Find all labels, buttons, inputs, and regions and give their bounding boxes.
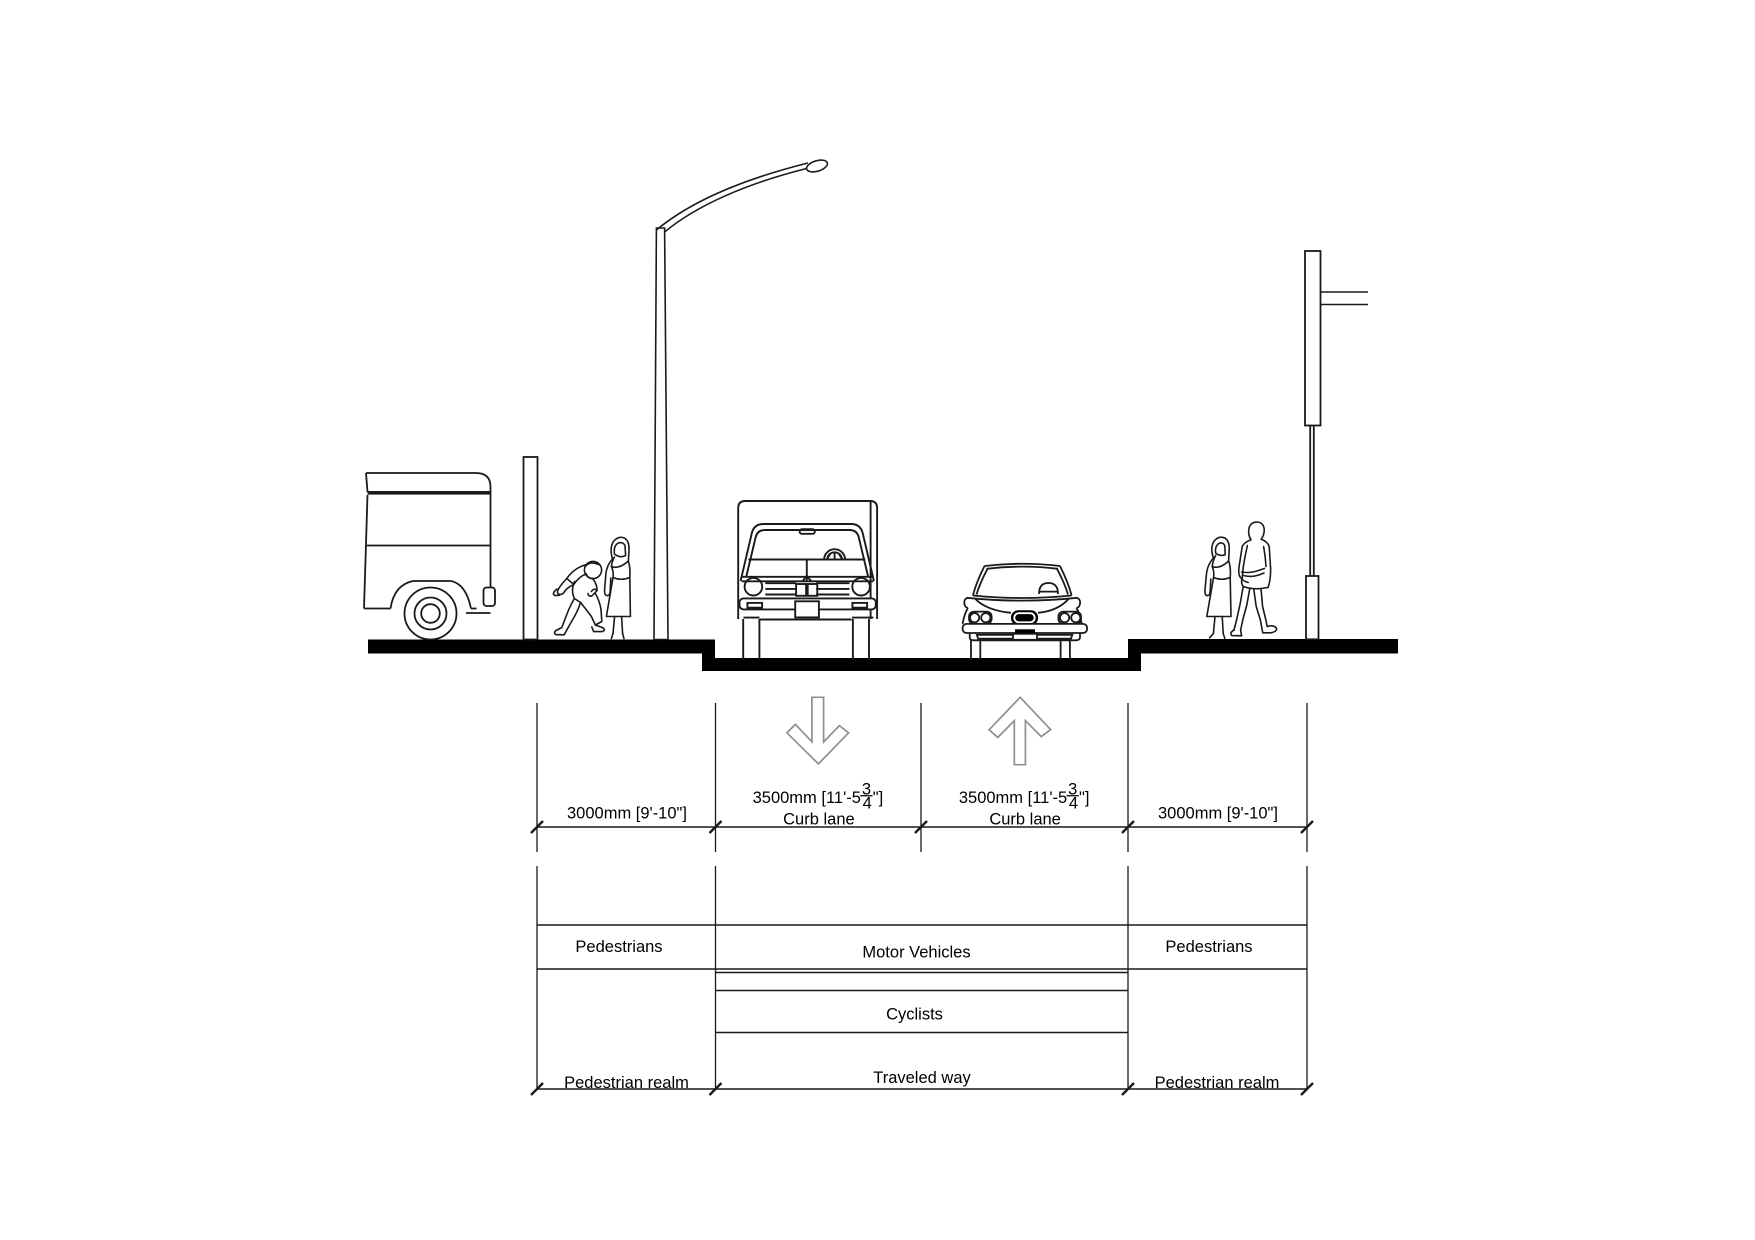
svg-text:3500mm [11'-5: 3500mm [11'-5 [959, 789, 1067, 807]
svg-text:Pedestrians: Pedestrians [1165, 938, 1252, 956]
svg-text:"]: "] [873, 789, 883, 807]
svg-text:Pedestrian realm: Pedestrian realm [564, 1074, 689, 1092]
svg-text:3000mm [9'-10"]: 3000mm [9'-10"] [567, 805, 687, 823]
svg-text:Motor Vehicles: Motor Vehicles [862, 944, 970, 962]
svg-text:Pedestrians: Pedestrians [575, 938, 662, 956]
svg-text:3000mm [9'-10"]: 3000mm [9'-10"] [1158, 805, 1278, 823]
svg-text:3500mm [11'-5: 3500mm [11'-5 [753, 789, 861, 807]
svg-text:Traveled way: Traveled way [873, 1069, 971, 1087]
svg-text:Cyclists: Cyclists [886, 1006, 943, 1024]
svg-text:Curb lane: Curb lane [989, 811, 1061, 829]
svg-text:4: 4 [863, 794, 872, 812]
svg-text:"]: "] [1079, 789, 1089, 807]
svg-text:Pedestrian realm: Pedestrian realm [1155, 1074, 1280, 1092]
svg-text:Curb lane: Curb lane [783, 811, 855, 829]
svg-text:4: 4 [1069, 794, 1078, 812]
